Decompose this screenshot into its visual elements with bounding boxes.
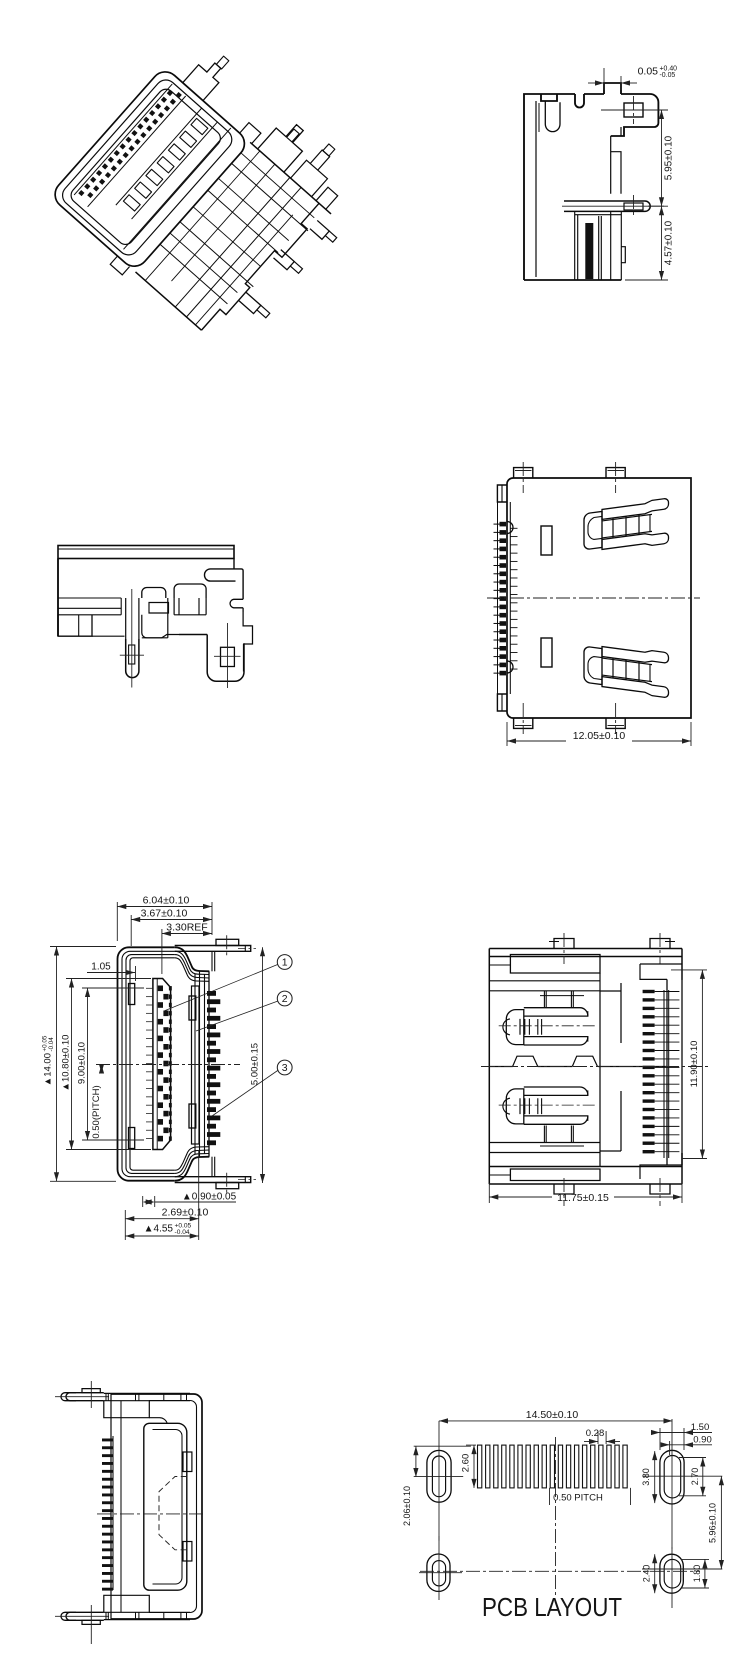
svg-text:2.40: 2.40 [642, 1565, 652, 1583]
svg-text:9.00±0.10: 9.00±0.10 [77, 1042, 88, 1084]
svg-text:3: 3 [282, 1062, 288, 1074]
svg-text:-0.04: -0.04 [48, 1037, 55, 1052]
svg-text:0.90: 0.90 [693, 1435, 712, 1446]
svg-text:2.60: 2.60 [461, 1454, 472, 1473]
svg-text:3.80: 3.80 [641, 1468, 651, 1486]
svg-text:▲14.00: ▲14.00 [43, 1053, 54, 1086]
svg-text:5.95±0.10: 5.95±0.10 [664, 135, 675, 180]
svg-text:2: 2 [282, 993, 288, 1005]
svg-text:3.30REF: 3.30REF [166, 922, 207, 934]
svg-text:3.67±0.10: 3.67±0.10 [141, 908, 188, 920]
svg-text:2.69±0.10: 2.69±0.10 [162, 1207, 209, 1219]
svg-text:PCB LAYOUT: PCB LAYOUT [482, 1592, 622, 1622]
svg-text:▲4.55: ▲4.55 [144, 1224, 174, 1235]
svg-text:6.04±0.10: 6.04±0.10 [143, 895, 190, 907]
svg-text:▲0.90±0.05: ▲0.90±0.05 [182, 1192, 237, 1203]
svg-text:12.05±0.10: 12.05±0.10 [573, 730, 626, 742]
svg-text:4.57±0.10: 4.57±0.10 [664, 220, 675, 265]
svg-text:11.75±0.15: 11.75±0.15 [557, 1192, 609, 1204]
svg-text:11.90±0.10: 11.90±0.10 [689, 1041, 700, 1088]
svg-text:-0.05: -0.05 [660, 72, 676, 79]
svg-text:▲10.80±0.10: ▲10.80±0.10 [61, 1035, 72, 1092]
svg-text:5.00±0.15: 5.00±0.15 [250, 1043, 261, 1085]
svg-text:0.50(PITCH): 0.50(PITCH) [91, 1085, 102, 1138]
svg-text:1: 1 [282, 957, 288, 969]
svg-text:0.28: 0.28 [586, 1428, 605, 1439]
svg-text:2.70: 2.70 [690, 1468, 700, 1486]
svg-text:5.96±0.10: 5.96±0.10 [708, 1503, 718, 1543]
svg-text:0.05: 0.05 [638, 66, 659, 78]
svg-text:1.80: 1.80 [692, 1565, 702, 1583]
svg-text:1.50: 1.50 [691, 1422, 710, 1433]
svg-text:2.06±0.10: 2.06±0.10 [402, 1486, 412, 1526]
svg-text:0.50 PITCH: 0.50 PITCH [553, 1493, 603, 1504]
svg-text:1.05: 1.05 [91, 962, 111, 973]
svg-text:-0.04: -0.04 [175, 1229, 190, 1236]
svg-text:14.50±0.10: 14.50±0.10 [526, 1409, 579, 1421]
